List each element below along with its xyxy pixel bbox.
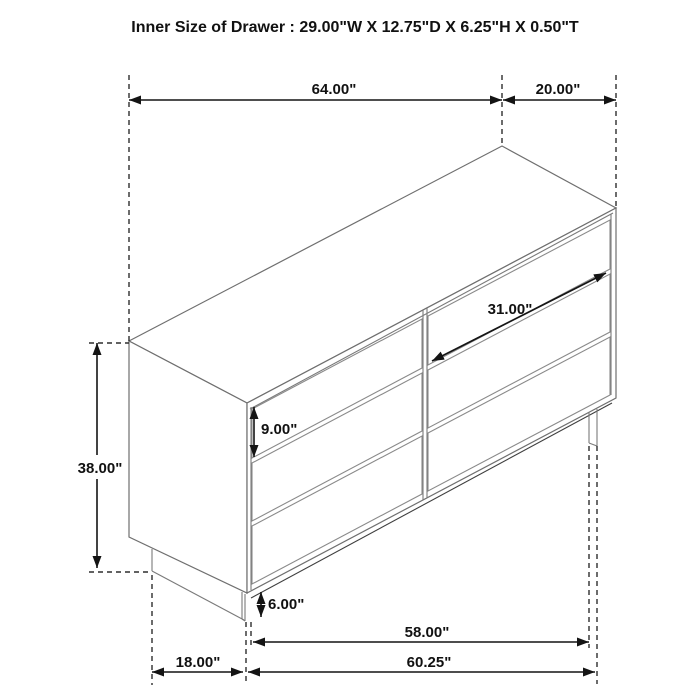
- dresser-dimension-diagram: Inner Size of Drawer : 29.00"W X 12.75"D…: [0, 0, 700, 700]
- dimension-label-base-height: 6.00": [268, 596, 304, 613]
- diagram-page: Inner Size of Drawer : 29.00"W X 12.75"D…: [0, 0, 700, 700]
- dimension-label-lower-width-overall: 60.25": [407, 654, 452, 671]
- dimension-label-top-width: 64.00": [312, 81, 357, 98]
- diagram-title: Inner Size of Drawer : 29.00"W X 12.75"D…: [131, 19, 579, 36]
- dimension-label-overall-height: 38.00": [78, 460, 123, 477]
- right-leg-bottom-edge: [589, 443, 597, 446]
- dimension-label-lower-width-inner: 58.00": [405, 624, 450, 641]
- dimension-label-drawer-width: 31.00": [488, 301, 533, 318]
- dimension-label-side-depth-bottom: 18.00": [176, 654, 221, 671]
- dresser-outline: [129, 146, 616, 621]
- dimension-label-top-depth: 20.00": [536, 81, 581, 98]
- dimension-label-drawer-height: 9.00": [261, 421, 297, 438]
